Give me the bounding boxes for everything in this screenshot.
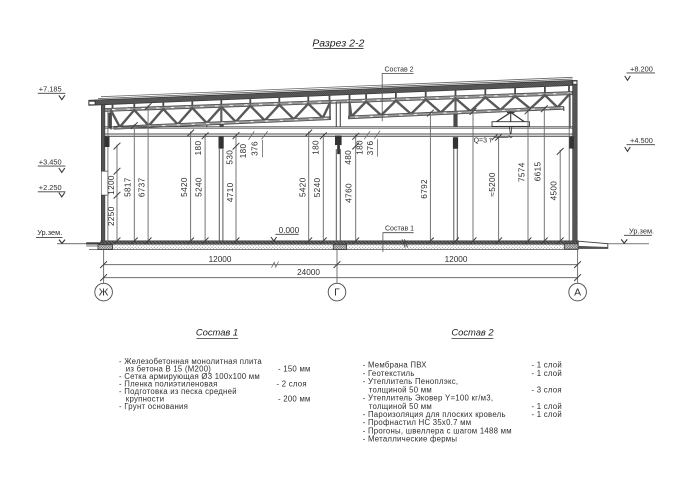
svg-text:Состав 1: Состав 1 (385, 226, 414, 233)
svg-text:Г: Г (334, 288, 340, 299)
svg-text:5817: 5817 (124, 177, 133, 197)
svg-text:12000: 12000 (209, 255, 232, 264)
svg-text:7574: 7574 (517, 162, 526, 182)
svg-text:5240: 5240 (313, 178, 322, 198)
svg-text:+8.200: +8.200 (630, 64, 653, 73)
svg-text:Ур.зем.: Ур.зем. (37, 228, 62, 237)
svg-text:А: А (574, 288, 581, 299)
svg-text:6737: 6737 (137, 177, 146, 197)
svg-text:Состав 1: Состав 1 (196, 326, 238, 337)
svg-text:376: 376 (251, 141, 260, 156)
svg-text:Ур.зем.: Ур.зем. (629, 227, 654, 236)
svg-text:530: 530 (225, 150, 234, 165)
svg-text:24000: 24000 (297, 268, 320, 277)
svg-text:+4.500: +4.500 (630, 136, 653, 145)
svg-text:- 2 слоя: - 2 слоя (277, 380, 307, 389)
svg-text:- 3 слоя: - 3 слоя (532, 385, 562, 394)
svg-text:6615: 6615 (534, 162, 543, 182)
svg-text:Состав 2: Состав 2 (451, 326, 494, 337)
svg-text:- Грунт основания: - Грунт основания (119, 402, 188, 411)
svg-text:- 1 слой: - 1 слой (532, 369, 563, 378)
svg-text:- 200 мм: - 200 мм (278, 395, 311, 404)
svg-text:+3.450: +3.450 (39, 157, 62, 166)
svg-text:4760: 4760 (344, 183, 353, 203)
svg-text:- 150 мм: - 150 мм (278, 365, 311, 374)
svg-text:0.000: 0.000 (279, 226, 300, 235)
svg-text:12000: 12000 (445, 255, 468, 264)
svg-text:Состав 2: Состав 2 (385, 67, 414, 74)
svg-text:Разрез 2-2: Разрез 2-2 (312, 38, 364, 50)
svg-text:180: 180 (239, 143, 248, 158)
svg-text:6792: 6792 (420, 179, 429, 199)
svg-text:5240: 5240 (195, 177, 204, 197)
svg-text:5420: 5420 (180, 177, 189, 197)
svg-text:+2.250: +2.250 (39, 183, 62, 192)
svg-text:4710: 4710 (226, 182, 235, 202)
svg-text:+7.185: +7.185 (39, 85, 62, 94)
svg-text:- Металлические фермы: - Металлические фермы (363, 435, 458, 444)
svg-text:1200: 1200 (107, 175, 116, 195)
svg-text:Q=3 т: Q=3 т (474, 138, 493, 145)
svg-text:≈5200: ≈5200 (488, 172, 497, 197)
svg-text:180: 180 (356, 140, 365, 155)
svg-text:376: 376 (366, 141, 375, 156)
svg-text:Ж: Ж (99, 288, 109, 299)
svg-text:480: 480 (344, 150, 353, 165)
svg-text:4500: 4500 (550, 181, 559, 201)
svg-text:2250: 2250 (107, 206, 116, 226)
svg-text:- 1 слой: - 1 слой (532, 410, 563, 419)
svg-text:180: 180 (194, 141, 203, 156)
svg-text:180: 180 (311, 140, 320, 155)
svg-text:5420: 5420 (298, 177, 307, 197)
